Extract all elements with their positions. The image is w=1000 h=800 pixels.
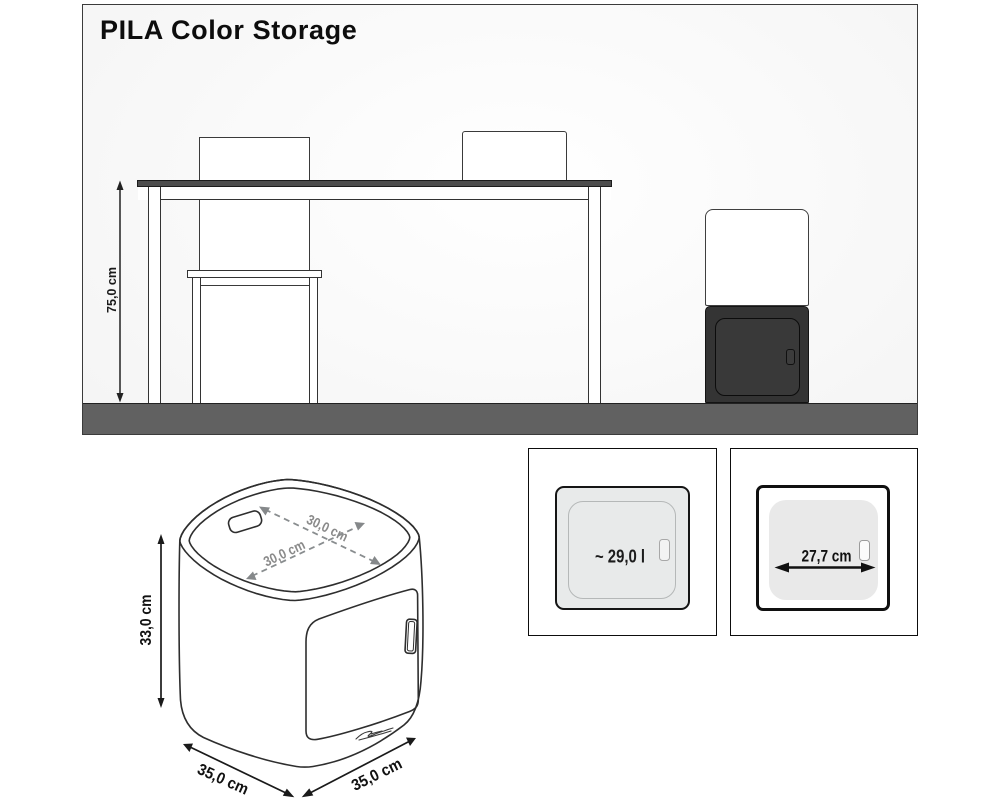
svg-text:35,0 cm: 35,0 cm [349, 755, 405, 794]
svg-text:33,0 cm: 33,0 cm [138, 595, 155, 646]
svg-text:75,0 cm: 75,0 cm [104, 267, 119, 313]
svg-text:27,7 cm: 27,7 cm [802, 548, 852, 566]
svg-text:35,0 cm: 35,0 cm [195, 761, 251, 798]
svg-text:~ 29,0 l: ~ 29,0 l [595, 546, 645, 567]
